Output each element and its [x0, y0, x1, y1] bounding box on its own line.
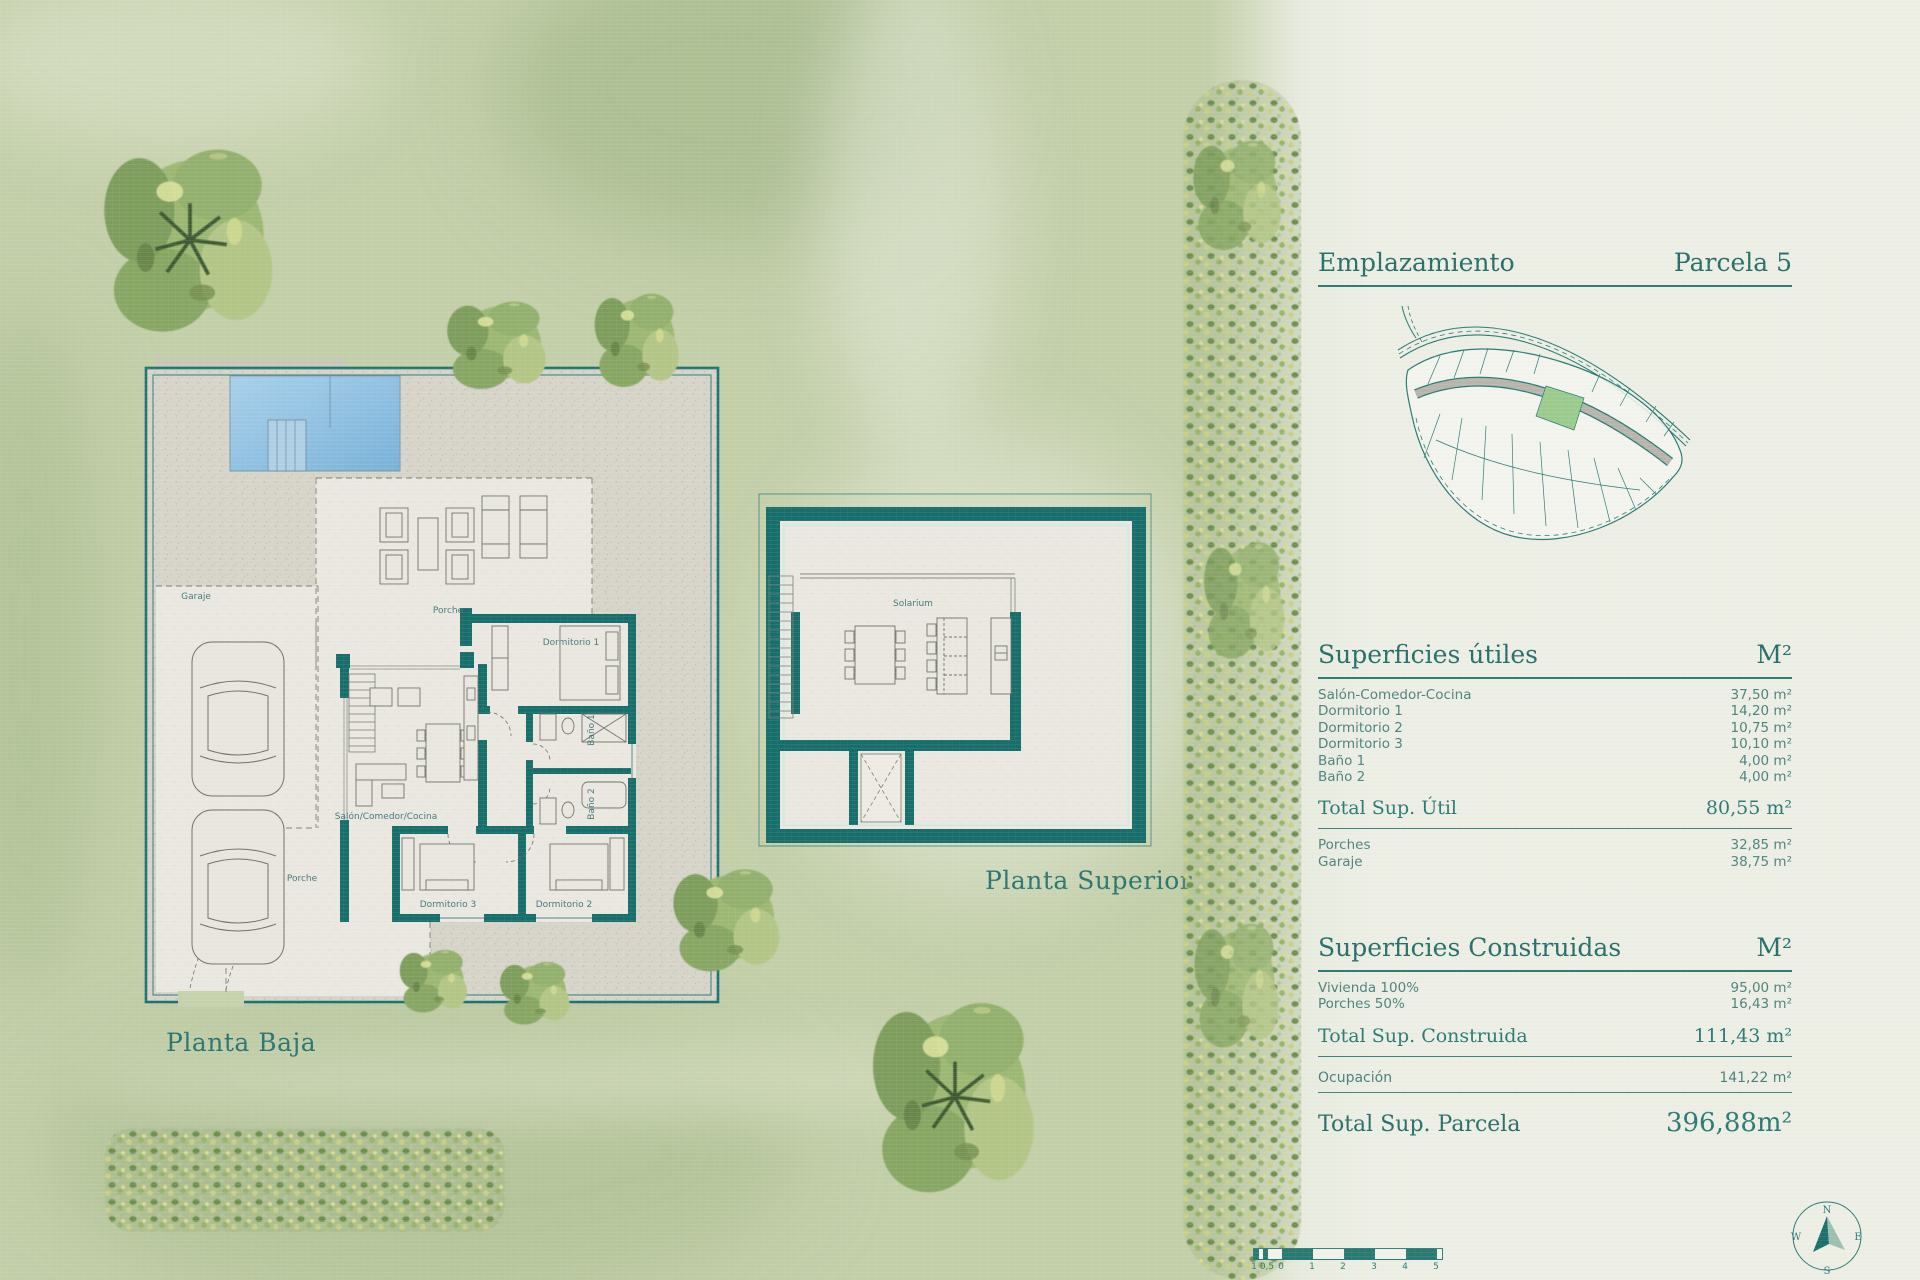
table-row: Dormitorio 210,75 m²: [1318, 720, 1792, 736]
planta-superior-caption: Planta Superior: [985, 866, 1192, 895]
row-value: 4,00 m²: [1739, 753, 1792, 769]
ocupacion-row: Ocupación 141,22 m²: [1318, 1070, 1792, 1093]
row-value: 37,50 m²: [1730, 687, 1792, 703]
total-value: 396,88m²: [1666, 1108, 1792, 1138]
total-util-row: Total Sup. Útil 80,55 m²: [1318, 797, 1792, 829]
pool: [230, 376, 400, 471]
room-label-garaje: Garaje: [181, 592, 211, 602]
scale-bar-graphic: [1253, 1248, 1443, 1260]
scale-label: 2: [1340, 1262, 1346, 1272]
watercolor-wash: [500, 0, 960, 240]
row-label: Garaje: [1318, 854, 1363, 870]
site-plan-sheet: Garaje Porche Dormitorio 1 Baño 1 Baño 2…: [0, 0, 1920, 1280]
scale-bar: 1 0,5 0 1 2 3 4 5: [1253, 1248, 1443, 1274]
emplazamiento-title: Emplazamiento: [1318, 248, 1515, 277]
tree-branches: [144, 190, 236, 290]
row-value: 141,22 m²: [1719, 1070, 1792, 1086]
parcel-number: Parcela 5: [1674, 248, 1792, 277]
row-value: 95,00 m²: [1730, 980, 1792, 996]
row-label: Dormitorio 2: [1318, 720, 1403, 736]
scale-label: 0,5: [1260, 1262, 1274, 1272]
header-row: Emplazamiento Parcela 5: [1318, 248, 1792, 287]
row-value: 10,75 m²: [1730, 720, 1792, 736]
row-label: Baño 2: [1318, 769, 1365, 785]
table-row: Salón-Comedor-Cocina37,50 m²: [1318, 687, 1792, 703]
row-label: Porches: [1318, 837, 1371, 853]
utiles-rows: Salón-Comedor-Cocina37,50 m² Dormitorio …: [1318, 687, 1792, 785]
compass-s: S: [1824, 1266, 1831, 1277]
compass-n: N: [1823, 1205, 1832, 1216]
row-label: Baño 1: [1318, 753, 1365, 769]
total-construida-row: Total Sup. Construida 111,43 m²: [1318, 1025, 1792, 1057]
scale-label: 5: [1433, 1262, 1439, 1272]
bush: [1190, 520, 1300, 680]
tree: [580, 276, 695, 404]
table-row: Dormitorio 114,20 m²: [1318, 703, 1792, 719]
table-row: Baño 24,00 m²: [1318, 769, 1792, 785]
table-row: Porches32,85 m²: [1318, 837, 1792, 853]
scale-label: 0: [1278, 1262, 1284, 1272]
planta-baja-caption: Planta Baja: [166, 1028, 316, 1057]
table-row: Garaje38,75 m²: [1318, 854, 1792, 870]
row-label: Salón-Comedor-Cocina: [1318, 687, 1472, 703]
tree: [845, 967, 1065, 1227]
room-label-dormitorio1: Dormitorio 1: [543, 638, 600, 648]
scale-label: 4: [1402, 1262, 1408, 1272]
section-title: Superficies Construidas: [1318, 933, 1621, 962]
section-title-row: Superficies útiles M²: [1318, 640, 1792, 679]
room-label-salon: Salón/Comedor/Cocina: [335, 811, 437, 822]
total-value: 80,55 m²: [1706, 797, 1792, 819]
row-label: Ocupación: [1318, 1070, 1392, 1086]
tree: [75, 115, 305, 365]
total-parcela-row: Total Sup. Parcela 396,88m²: [1318, 1108, 1792, 1138]
total-label: Total Sup. Parcela: [1318, 1112, 1520, 1137]
scale-label: 1: [1251, 1262, 1257, 1272]
row-label: Vivienda 100%: [1318, 980, 1419, 996]
scale-label: 1: [1309, 1262, 1315, 1272]
compass-e: E: [1854, 1232, 1861, 1243]
table-row: Dormitorio 310,10 m²: [1318, 736, 1792, 752]
room-label-porche-top: Porche: [433, 606, 464, 616]
site-location-map: [1388, 298, 1708, 568]
construidas-rows: Vivienda 100%95,00 m² Porches 50%16,43 m…: [1318, 980, 1792, 1013]
watercolor-wash: [0, 300, 100, 1000]
scale-bar-labels: 1 0,5 0 1 2 3 4 5: [1253, 1262, 1443, 1274]
total-value: 111,43 m²: [1694, 1025, 1792, 1047]
compass-w: W: [1791, 1232, 1802, 1243]
table-row: Baño 14,00 m²: [1318, 753, 1792, 769]
unit-label: M²: [1756, 640, 1792, 669]
total-label: Total Sup. Útil: [1318, 797, 1457, 819]
room-label-bano1: Baño 1: [587, 714, 597, 746]
unit-label: M²: [1756, 933, 1792, 962]
total-label: Total Sup. Construida: [1318, 1025, 1528, 1047]
room-label-solarium: Solarium: [893, 599, 933, 609]
planta-superior-plan: Solarium: [753, 478, 1173, 858]
row-value: 32,85 m²: [1730, 837, 1792, 853]
scale-label: 3: [1371, 1262, 1377, 1272]
room-label-bano2: Baño 2: [587, 788, 597, 820]
planta-baja-plan: Garaje Porche Dormitorio 1 Baño 1 Baño 2…: [130, 358, 730, 1018]
superficies-utiles-section: Superficies útiles M² Salón-Comedor-Coci…: [1318, 640, 1792, 870]
compass-rose: N E S W: [1779, 1190, 1875, 1280]
bush: [1178, 120, 1298, 270]
room-labels: Solarium: [893, 599, 933, 609]
bush: [488, 950, 583, 1036]
room-label-porche-bottom: Porche: [287, 874, 318, 884]
bush: [388, 938, 480, 1024]
tree-branches: [911, 1045, 999, 1149]
superficies-construidas-section: Superficies Construidas M² Vivienda 100%…: [1318, 933, 1792, 1138]
row-value: 38,75 m²: [1730, 854, 1792, 870]
room-label-dormitorio2: Dormitorio 2: [536, 900, 593, 910]
row-value: 10,10 m²: [1730, 736, 1792, 752]
utiles-extras: Porches32,85 m² Garaje38,75 m²: [1318, 837, 1792, 870]
row-value: 4,00 m²: [1739, 769, 1792, 785]
tree: [430, 285, 565, 405]
table-row: Porches 50%16,43 m²: [1318, 996, 1792, 1012]
section-title-row: Superficies Construidas M²: [1318, 933, 1792, 972]
bush: [1180, 900, 1295, 1070]
emplazamiento-header: Emplazamiento Parcela 5: [1318, 248, 1792, 287]
tree: [655, 850, 800, 990]
watercolor-wash: [820, 0, 1010, 460]
row-value: 14,20 m²: [1730, 703, 1792, 719]
section-title: Superficies útiles: [1318, 640, 1538, 669]
row-value: 16,43 m²: [1730, 996, 1792, 1012]
row-label: Porches 50%: [1318, 996, 1405, 1012]
row-label: Dormitorio 1: [1318, 703, 1403, 719]
table-row: Vivienda 100%95,00 m²: [1318, 980, 1792, 996]
row-label: Dormitorio 3: [1318, 736, 1403, 752]
room-label-dormitorio3: Dormitorio 3: [420, 900, 477, 910]
hedge: [105, 1128, 505, 1232]
